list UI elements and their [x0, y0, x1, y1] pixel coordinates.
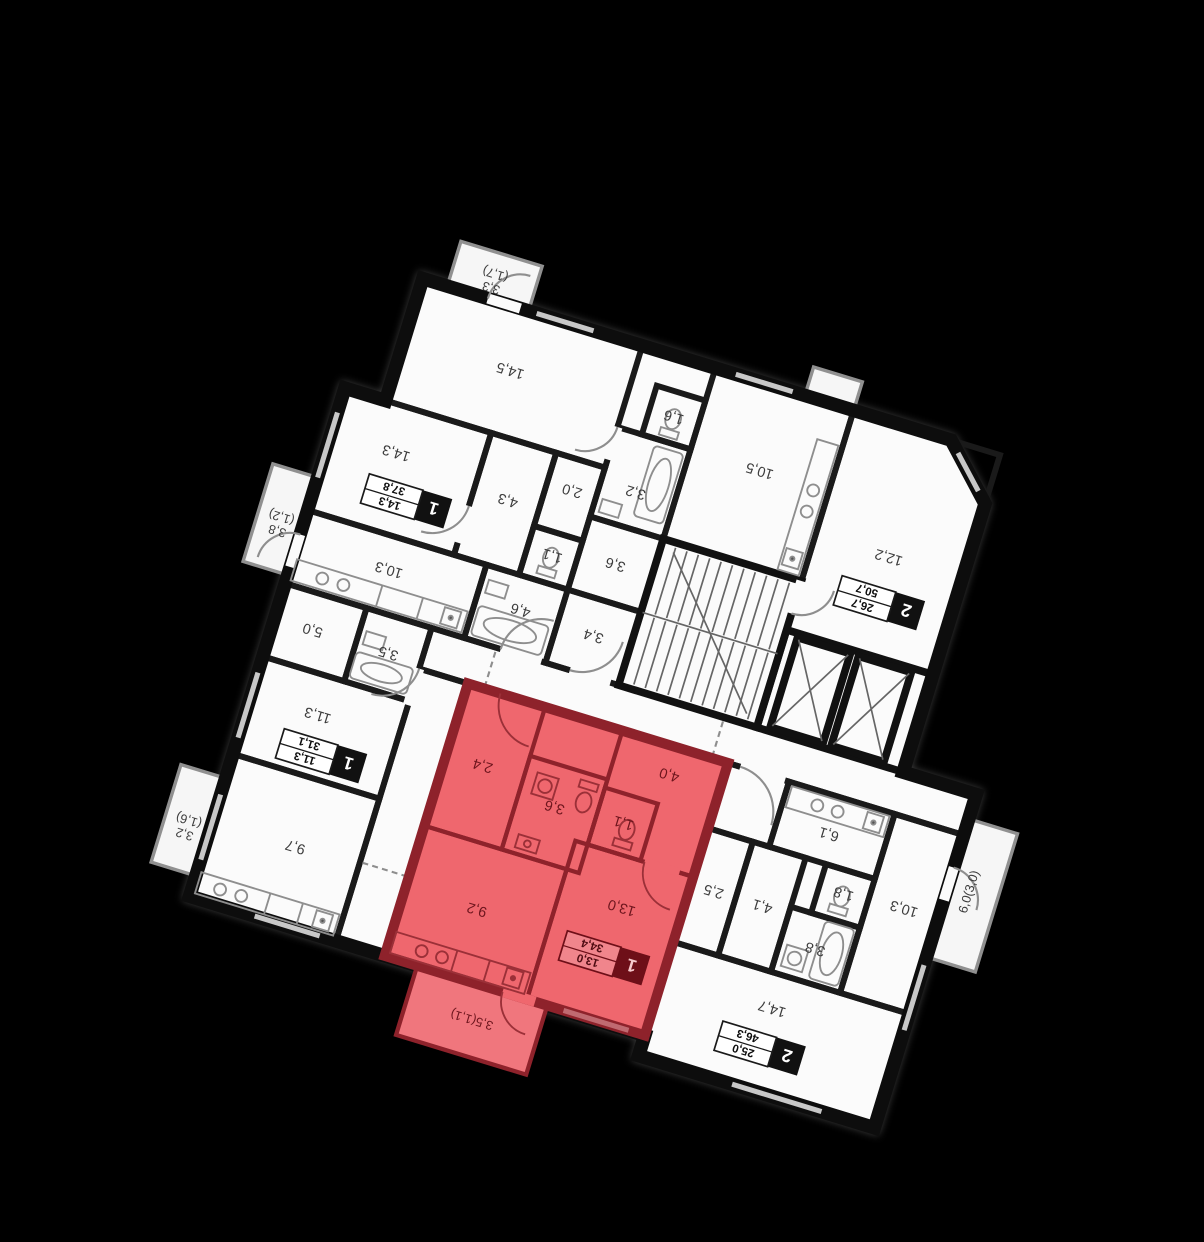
floor-plan-viewer: 12,210,53,43,63,21,614,53,3(1,7)226,750,… — [0, 0, 1204, 1242]
floor-plan: 12,210,53,43,63,21,614,53,3(1,7)226,750,… — [0, 0, 1204, 1242]
